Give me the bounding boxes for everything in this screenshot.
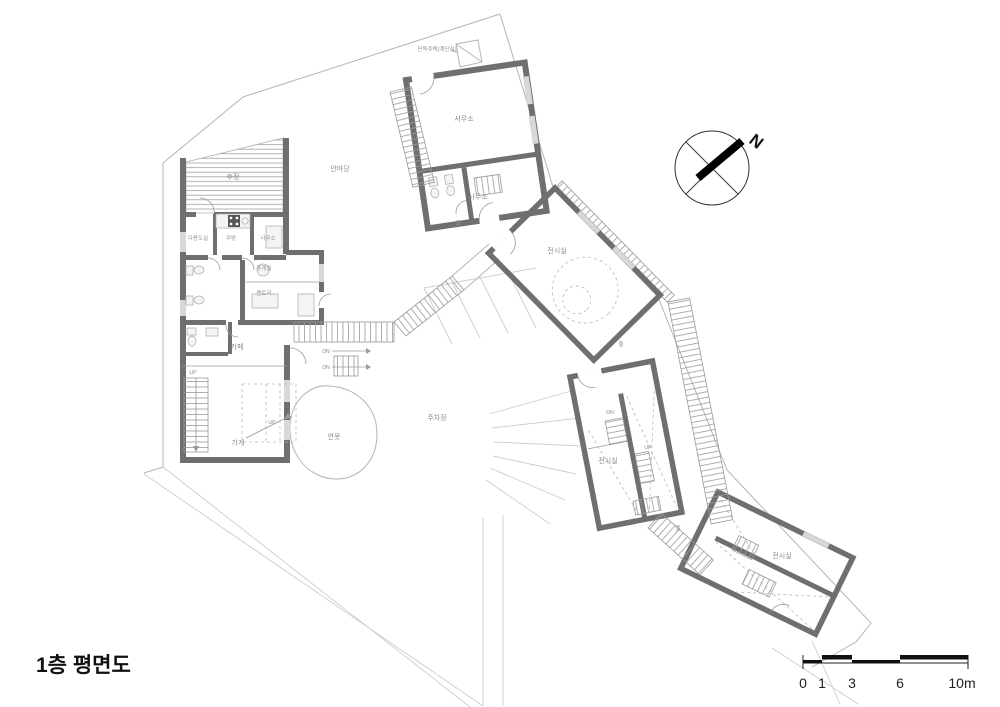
door-arc [454,200,468,214]
toilet [186,266,204,275]
up-label: UP [644,445,652,451]
entry-label: 엔트리 [256,289,271,297]
kitchen-label: 주방 [226,234,236,242]
site-landscape [290,244,582,706]
courtyard-label: 안마당 [330,164,350,173]
window [802,531,829,548]
wall [250,214,254,255]
window [180,232,186,252]
door-arc [290,348,306,364]
left-building [180,138,331,463]
partition-line [588,441,627,449]
cafe-label: 카페 [231,342,244,351]
sink [242,218,248,224]
exhibition3-label: 전시실 [772,551,791,560]
wall [254,255,286,260]
rear-yard-label: 후정 [227,172,240,181]
stove [228,215,240,227]
pond-label: 연못 [328,433,341,441]
dn-label: DN [322,349,330,355]
wall [240,260,245,322]
yard-label: 뜰 [455,220,460,227]
site-slope-line-4 [812,641,840,704]
up-label: UP [268,420,276,426]
door-opening [411,72,434,83]
window [284,380,290,402]
wall [182,352,228,356]
pond-outline [290,386,377,479]
page-title: 1층 평면도 [36,654,131,677]
dn-label: DN [322,365,330,371]
wall [419,152,538,174]
courtyard-steps [474,174,502,195]
parking-stalls [424,268,582,524]
exhibition-hall-2 [569,358,681,528]
site-slope-line [144,474,483,706]
wall [284,345,290,460]
wall [182,255,208,260]
toilet [187,328,218,346]
window [319,264,324,282]
scale-label-0: 0 [799,675,807,691]
stair-arrow [366,348,371,354]
scale-seg [803,660,822,664]
office-lower-label: 사무소 [468,192,488,201]
scale-label-1: 1 [818,675,826,691]
path-edge [452,244,489,276]
exhibition2-label: 전시실 [598,456,617,465]
wall [714,536,835,598]
yard-label: 뜰 [618,341,623,348]
wall [286,250,324,255]
office-upper-label: 사무소 [454,114,474,123]
scale-seg [852,660,900,664]
dn-label: DN [606,410,614,416]
wall [186,212,196,217]
stair-landing [633,496,661,515]
door-opening [479,214,500,225]
path-edge [464,259,499,290]
exhibition1-label: 전시실 [547,246,566,255]
parking-label: 주차장 [427,413,447,422]
wall [283,138,289,218]
scale-seg [822,655,852,660]
lounge-label: 휴게실 [256,264,271,272]
door-opening [492,229,513,250]
path-steps [394,276,464,336]
scale-label-6: 6 [896,675,904,691]
scale-bar: 0 1 3 6 10m [799,655,976,691]
door-opening [577,368,602,378]
window [180,300,186,316]
door-arc [208,258,220,270]
scale-seg [900,655,968,660]
center-stair [334,356,358,376]
scale-label-3: 3 [848,675,856,691]
scale-label-10m: 10m [948,675,975,691]
site-slope-line-2 [163,467,470,707]
up-label: UP [189,370,197,376]
eave-walk [555,181,674,302]
site-note-label: 단독주택(계단실) [417,45,456,53]
shop-label: 가게 [232,438,245,447]
wall [182,320,226,325]
north-arrow: N [675,130,767,205]
exhibition-hall-1 [487,179,675,367]
wall [180,457,290,463]
exhibit-circle-large [539,243,632,336]
door-arc [319,294,331,306]
window [284,420,290,440]
office-annex-label: 사무소 [260,234,275,242]
floor-plan-drawing: N 0 1 3 6 10m 단독주택(계단실) 후정 안마당 사무소 사무소 다… [0,0,1000,707]
site-boundary [144,14,871,707]
utility-label: 다용도실 [188,234,208,242]
office-west-stair [390,87,434,187]
stair-hall-outline [452,40,482,67]
north-pointer [698,141,742,178]
wall [222,255,242,260]
floor-plan-sheet: N 0 1 3 6 10m 단독주택(계단실) 후정 안마당 사무소 사무소 다… [0,0,1000,707]
yard-label: 뜰 [675,525,680,532]
shoe-cabinet [298,294,314,316]
stair-arrow [366,364,371,370]
office-building [405,58,549,232]
toilet [186,296,204,305]
porch-deck [294,322,394,342]
wall [283,218,289,254]
north-label: N [746,130,767,153]
